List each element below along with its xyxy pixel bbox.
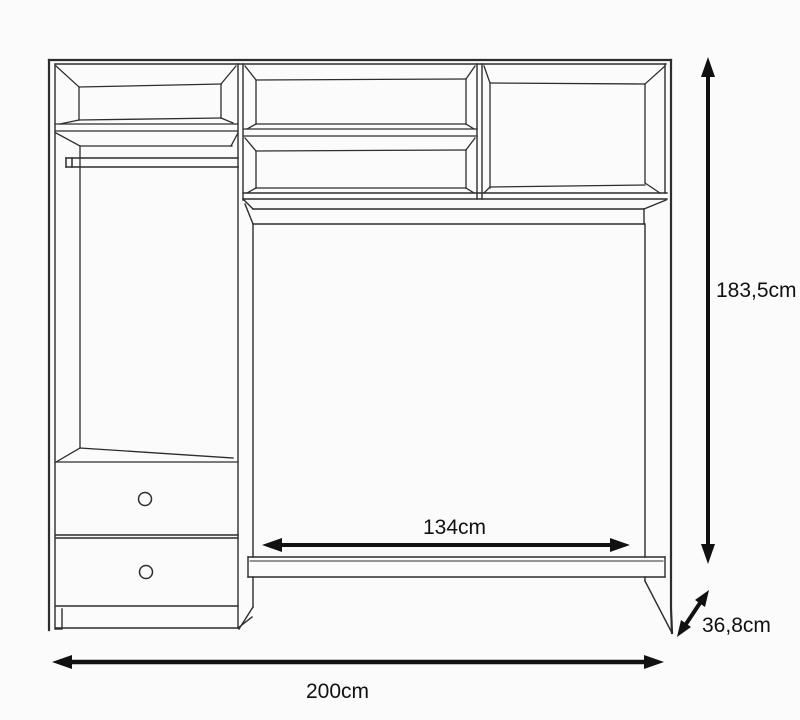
depth-dimension-label: 36,8cm — [702, 614, 771, 637]
plinth — [56, 609, 252, 628]
height-dimension-arrow — [701, 57, 715, 564]
height-dimension-label: 183,5cm — [716, 279, 797, 302]
total-width-dimension-arrow — [52, 655, 664, 669]
drawers — [56, 535, 238, 606]
niche-opening — [239, 224, 672, 633]
right-top-cubby — [484, 66, 665, 193]
wardrobe-diagram: 183,5cm 134cm 200cm 36,8cm — [0, 0, 800, 720]
divider-middle-right — [477, 64, 482, 199]
drawing-stage: 183,5cm 134cm 200cm 36,8cm — [0, 0, 800, 720]
total-width-dimension-label: 200cm — [306, 680, 369, 703]
middle-cubbies — [244, 66, 477, 193]
drawer-knob-icon — [140, 566, 153, 579]
hanging-rod — [66, 158, 238, 167]
inner-width-dimension-label: 134cm — [423, 516, 486, 539]
hanging-section — [56, 133, 238, 462]
drawer-knob-icon — [139, 493, 152, 506]
niche-header-rail — [244, 200, 666, 224]
divider-left-middle — [238, 64, 243, 628]
top-row-bottom-band — [243, 193, 667, 199]
niche-bottom-rail — [248, 557, 665, 577]
inner-width-dimension-arrow — [262, 538, 630, 552]
left-top-cubby — [55, 66, 238, 131]
